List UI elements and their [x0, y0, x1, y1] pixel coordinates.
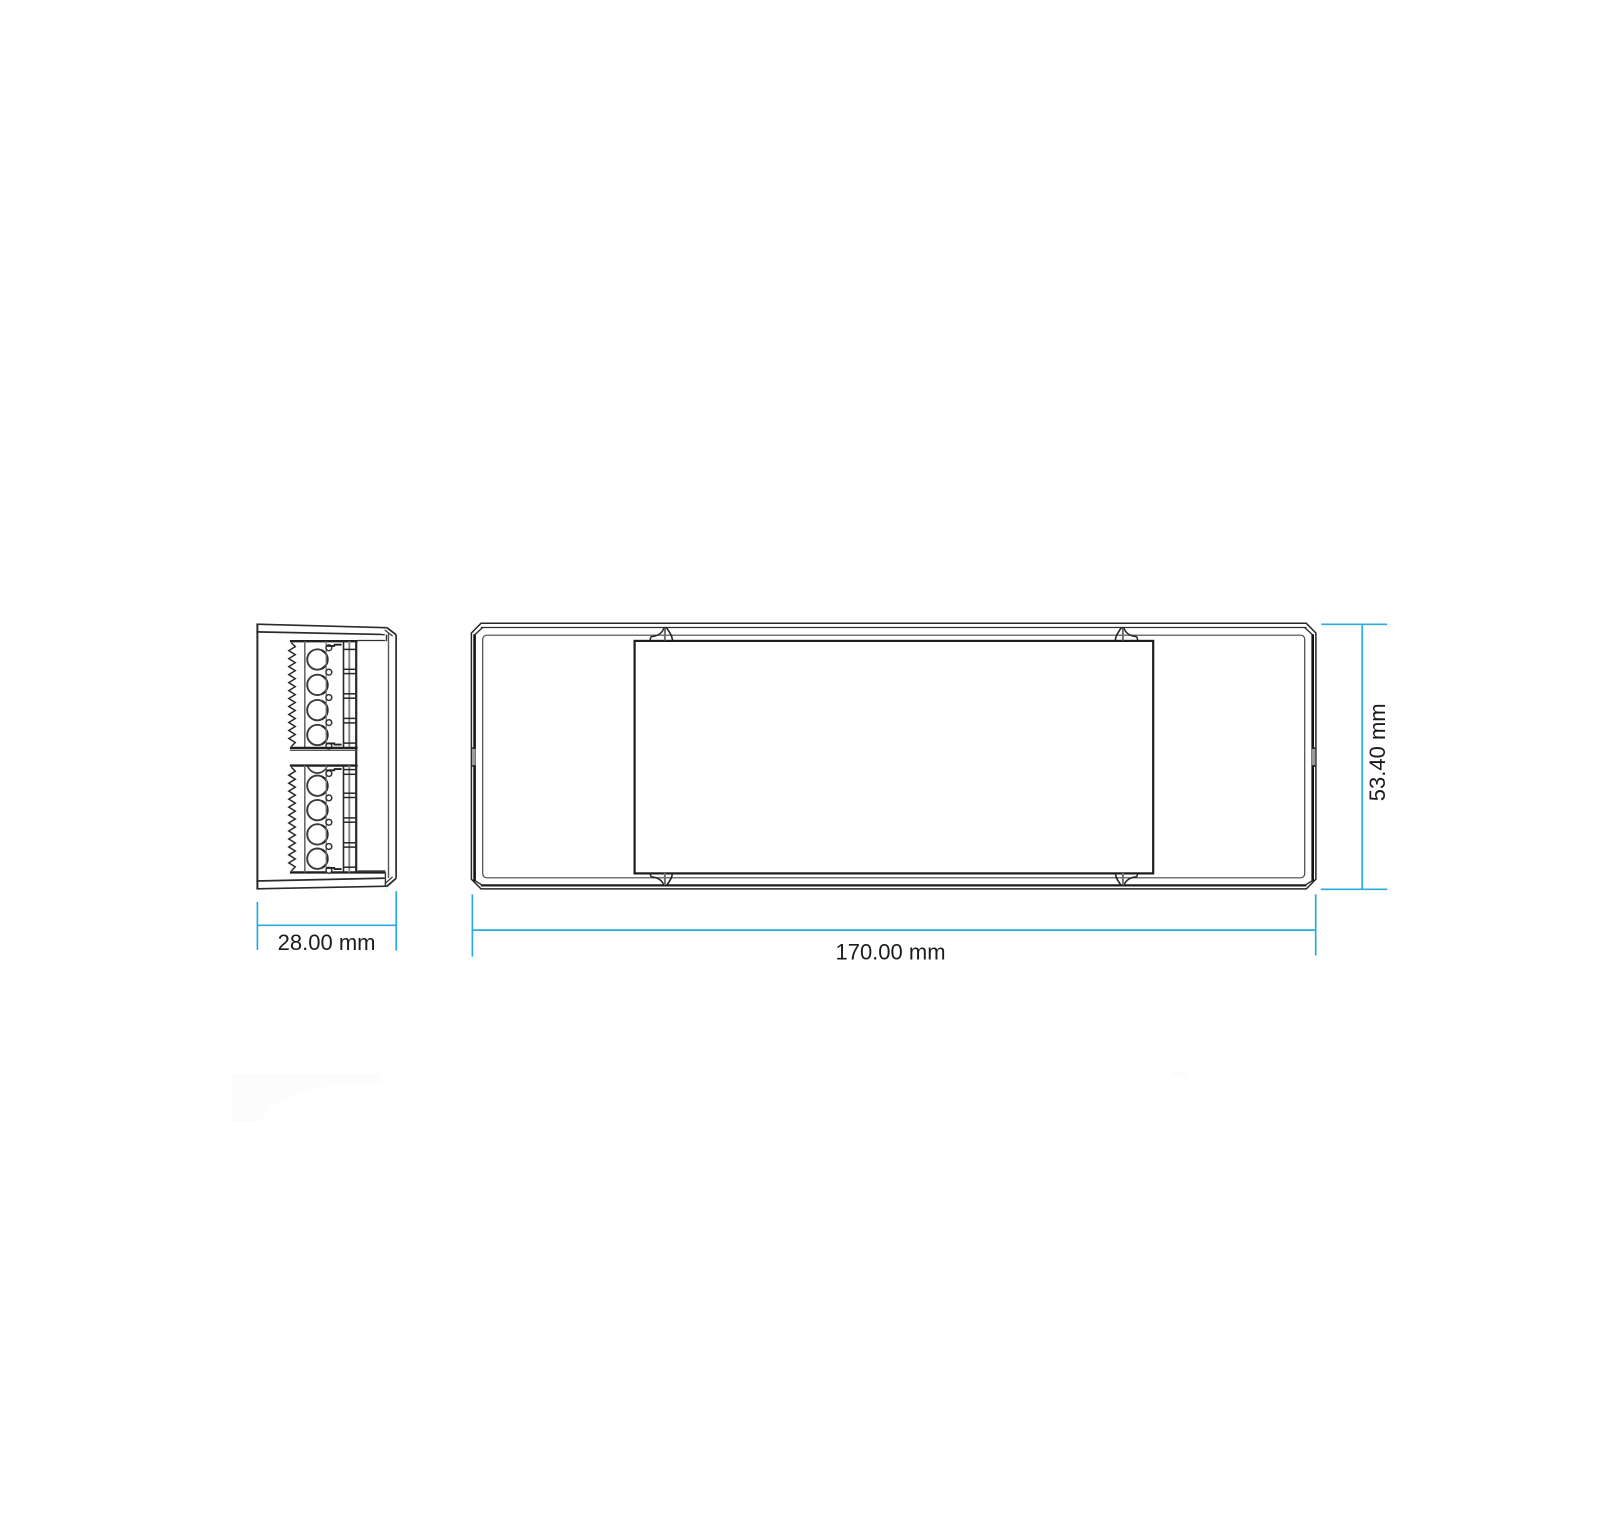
svg-text:28.00 mm: 28.00 mm: [278, 930, 376, 955]
svg-text:170.00 mm: 170.00 mm: [835, 940, 945, 965]
svg-text:53.40 mm: 53.40 mm: [1365, 703, 1390, 801]
